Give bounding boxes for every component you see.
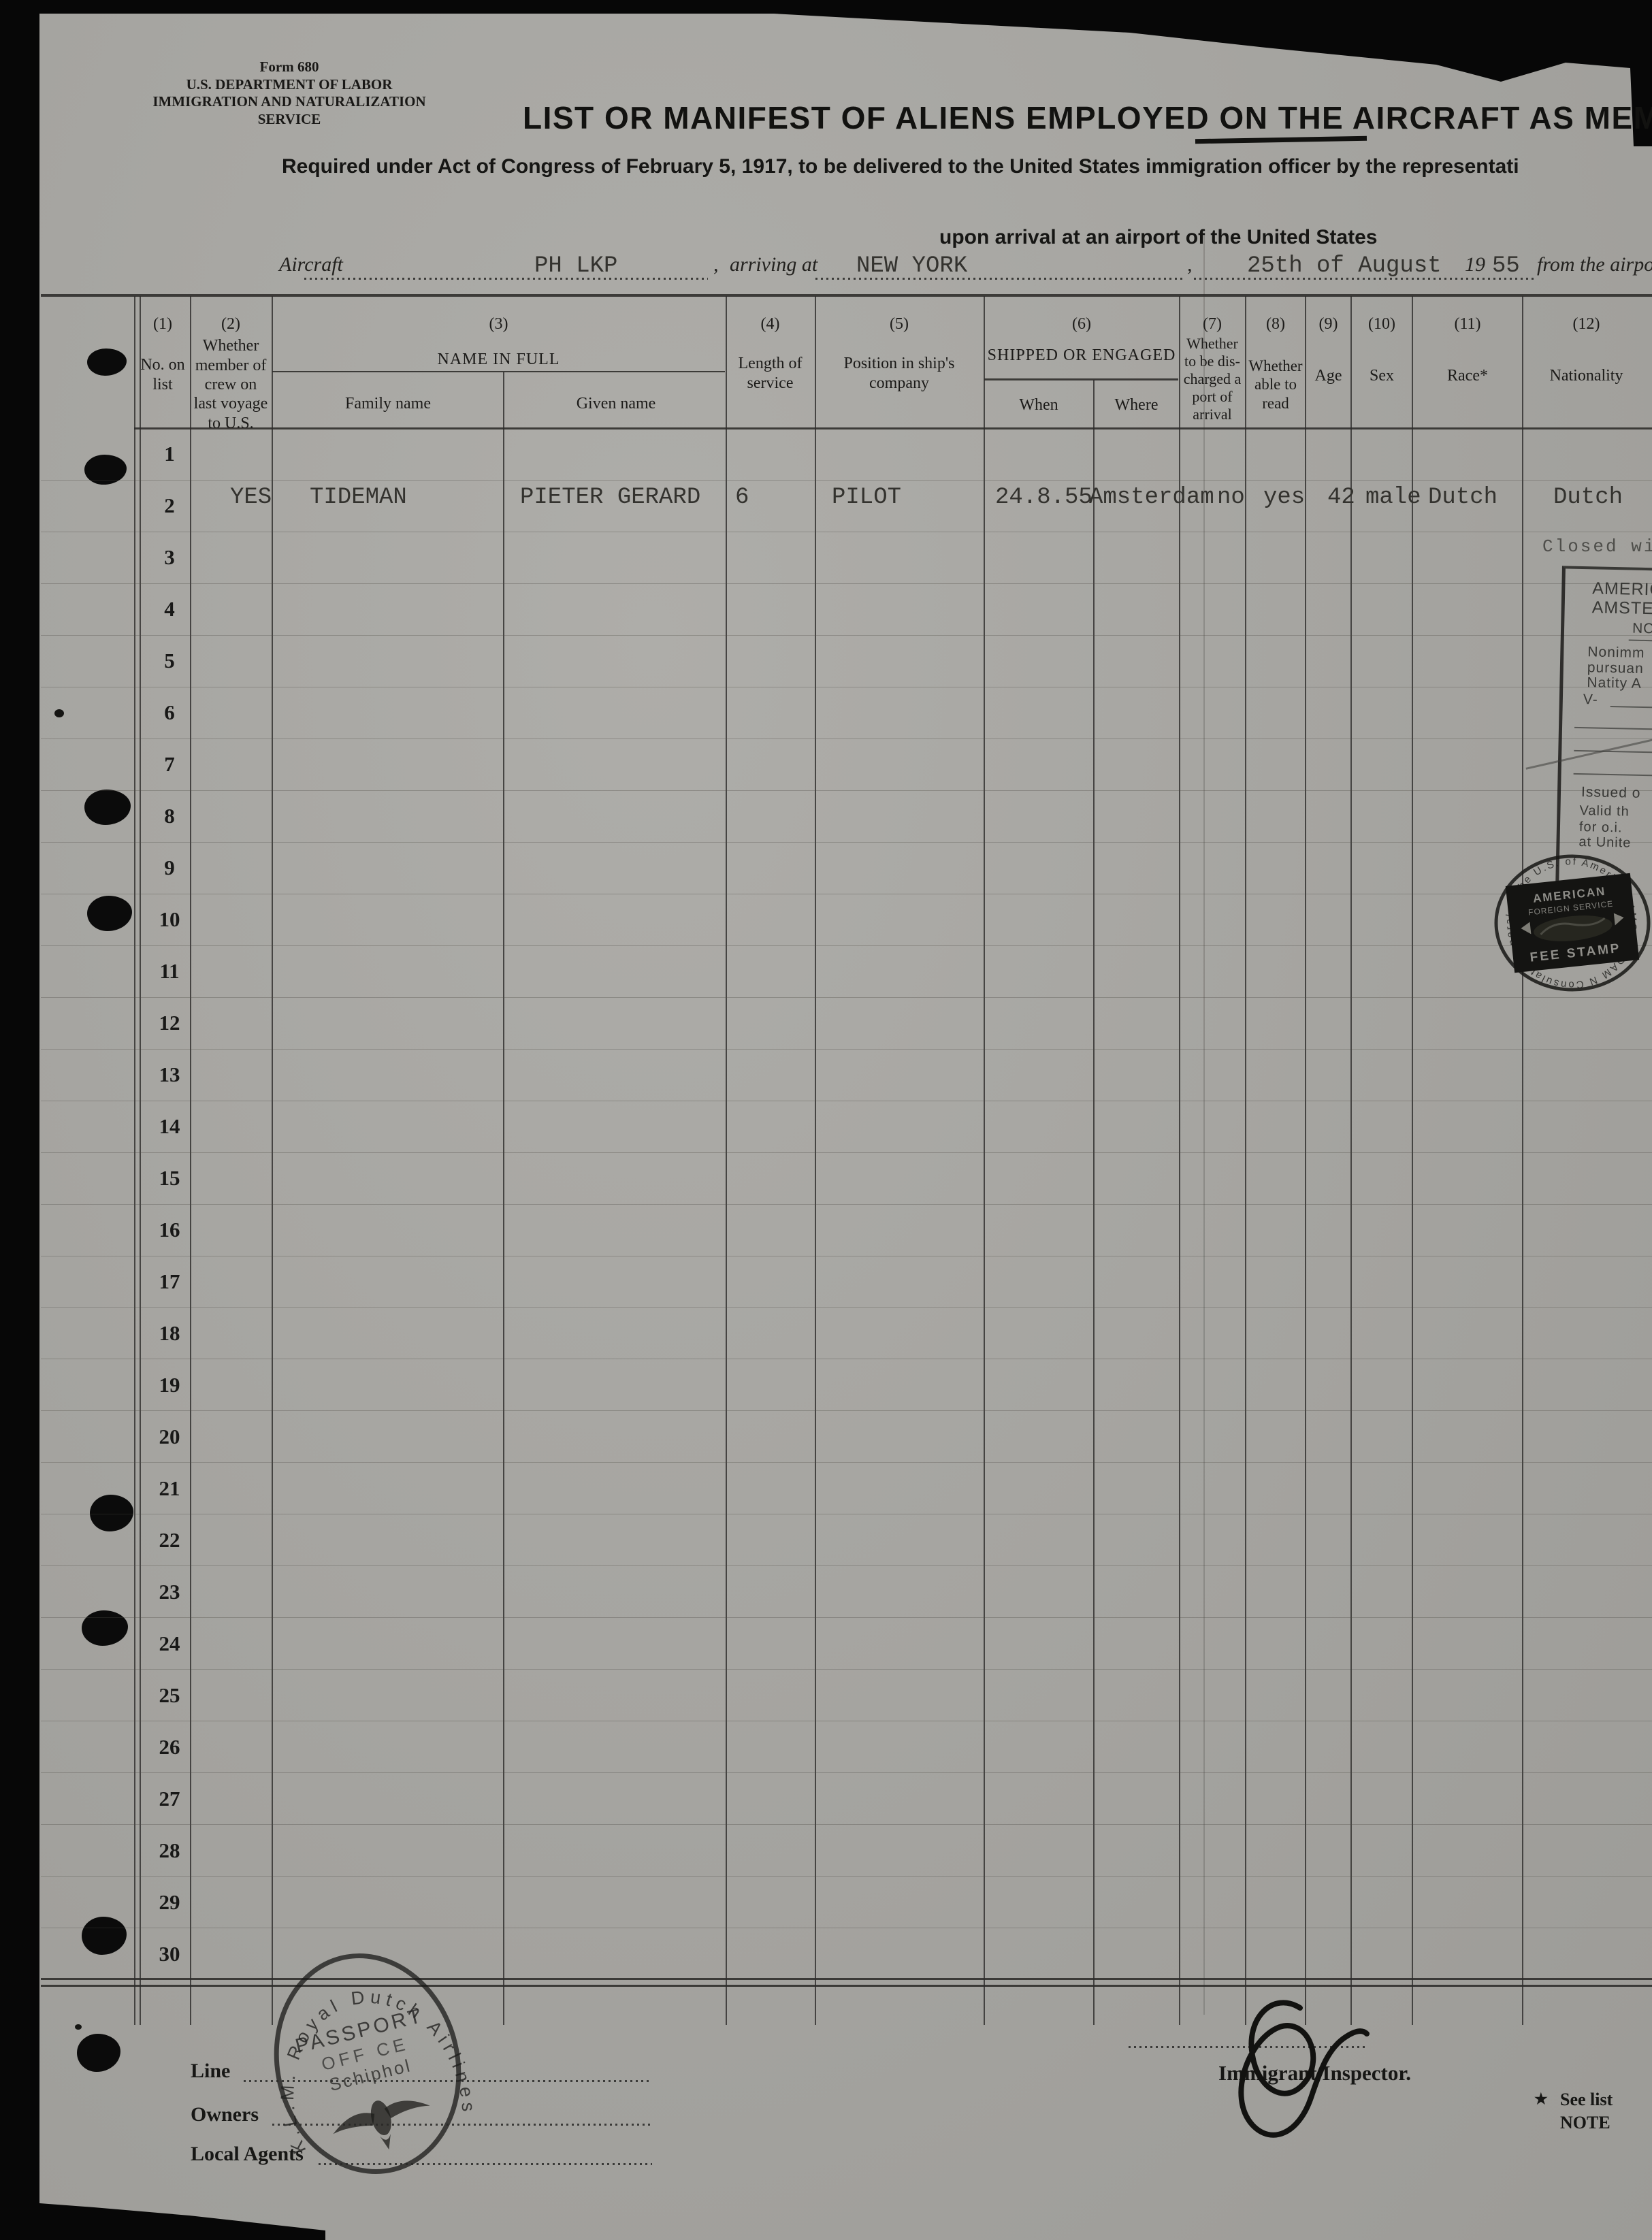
manifest-row: 11 — [41, 946, 1652, 998]
entry-able-to-read: yes — [1263, 485, 1305, 510]
race-note: ★ See list NOTE — [1560, 2088, 1613, 2135]
visa-line: Valid th — [1579, 803, 1630, 820]
manifest-row: 26 — [41, 1721, 1652, 1773]
row-number: 21 — [152, 1476, 187, 1501]
manifest-row: 27 — [41, 1773, 1652, 1825]
manifest-row: 19 — [41, 1359, 1652, 1411]
dotted-line — [304, 278, 708, 280]
manifest-row: 13 — [41, 1050, 1652, 1101]
row-number: 30 — [152, 1942, 187, 1966]
visa-underline — [1629, 640, 1652, 643]
col-header-9: (9) Age — [1306, 314, 1350, 386]
manifest-row: 3 — [41, 532, 1652, 584]
name-subheader-divider — [272, 371, 725, 372]
form-number: Form 680 — [129, 59, 449, 76]
manifest-row: 29 — [41, 1877, 1652, 1928]
col-label: NAME IN FULL — [272, 350, 725, 369]
visa-rule — [1610, 706, 1652, 709]
col-num: (4) — [728, 314, 812, 334]
manifest-row: 28 — [41, 1825, 1652, 1877]
local-agents-label: Local Agents — [191, 2143, 304, 2166]
entry-race: Dutch — [1428, 485, 1497, 510]
col-label: Whether member of crew on last voyage to… — [193, 336, 269, 433]
row-number: 20 — [152, 1425, 187, 1449]
manifest-row: 9 — [41, 843, 1652, 894]
row-number: 2 — [152, 493, 187, 518]
visa-rule — [1574, 750, 1652, 753]
row-number: 17 — [152, 1269, 187, 1294]
manifest-row: 5 — [41, 636, 1652, 687]
entry-family-name: TIDEMAN — [310, 485, 407, 510]
manifest-row: 21 — [41, 1463, 1652, 1514]
visa-line: at Unite — [1578, 834, 1631, 851]
entry-age: 42 — [1327, 485, 1355, 510]
subcol-where: Where — [1096, 396, 1177, 415]
col-num: (6) — [986, 314, 1177, 334]
visa-line: Natity A — [1587, 675, 1642, 692]
table-top-border — [41, 294, 1652, 297]
line-label: Line — [191, 2060, 230, 2083]
manifest-row: 15 — [41, 1153, 1652, 1205]
row-number: 22 — [152, 1528, 187, 1553]
entry-shipped-when: 24.8.55 — [995, 485, 1092, 510]
col-num: (8) — [1246, 314, 1305, 334]
visa-line: NO — [1632, 621, 1652, 638]
col-header-3: (3) NAME IN FULL — [272, 314, 725, 370]
manifest-row: 24 — [41, 1618, 1652, 1670]
manifest-row: 6 — [41, 687, 1652, 739]
col-header-10: (10) Sex — [1352, 314, 1412, 386]
star-icon: ★ — [1534, 2090, 1548, 2109]
row-number: 5 — [152, 649, 187, 673]
manifest-row: 23 — [41, 1566, 1652, 1618]
row-number: 19 — [152, 1373, 187, 1397]
scan-edge-left — [0, 0, 39, 2240]
col-num: (1) — [137, 314, 189, 334]
col-label: Nationality — [1523, 366, 1649, 385]
dotted-line — [815, 278, 1184, 280]
arrival-date-value: 25th of August — [1247, 253, 1442, 279]
manifest-row: 22 — [41, 1514, 1652, 1566]
visa-line: Nonimm — [1587, 644, 1645, 662]
row-number: 9 — [152, 856, 187, 880]
arriving-at-label: arriving at — [730, 253, 817, 276]
manifest-row: 4 — [41, 584, 1652, 636]
manifest-row: 17 — [41, 1256, 1652, 1308]
visa-line: Issued o — [1581, 784, 1641, 802]
col-header-2: (2) Whether member of crew on last voyag… — [193, 314, 269, 433]
aircraft-value: PH LKP — [534, 253, 617, 279]
col-header-12: (12) Nationality — [1523, 314, 1649, 386]
page-title: LIST OR MANIFEST OF ALIENS EMPLOYED ON T… — [523, 99, 1652, 136]
form-id-block: Form 680 U.S. DEPARTMENT OF LABOR IMMIGR… — [129, 59, 449, 128]
row-number: 7 — [152, 752, 187, 777]
scan-edge-top-right — [749, 0, 1652, 177]
col-header-11: (11) Race* — [1413, 314, 1522, 386]
row-number: 8 — [152, 804, 187, 828]
row-number: 29 — [152, 1890, 187, 1915]
owners-dotted — [272, 2124, 652, 2126]
entry-position: PILOT — [832, 485, 901, 510]
ink-speck — [75, 2024, 82, 2030]
scanned-manifest-document: Form 680 U.S. DEPARTMENT OF LABOR IMMIGR… — [0, 0, 1652, 2240]
manifest-row: 12 — [41, 998, 1652, 1050]
entry-length-of-service: 6 — [735, 485, 749, 510]
manifest-row: 10 — [41, 894, 1652, 946]
col-header-5: (5) Position in ship's company — [817, 314, 981, 393]
klm-stamp-arc-text: K.L.M. Royal Dutch Airlines — [253, 1965, 483, 2163]
col-header-7: (7) Whether to be dis-charged a port of … — [1180, 314, 1244, 423]
entry-discharged: no — [1217, 485, 1245, 510]
col-label: Age — [1306, 366, 1350, 385]
dotted-line — [1194, 278, 1534, 280]
row-number: 6 — [152, 700, 187, 725]
col-label: Sex — [1352, 366, 1412, 385]
col-label: No. on list — [137, 355, 189, 394]
col-num: (3) — [272, 314, 725, 334]
manifest-row: 16 — [41, 1205, 1652, 1256]
entry-nationality: Dutch — [1553, 485, 1623, 510]
closed-note: Closed wit — [1542, 536, 1652, 557]
col-label: Position in ship's company — [817, 354, 981, 393]
subtitle-line1: Required under Act of Congress of Februa… — [282, 155, 1652, 178]
col-header-1: (1) No. on list — [137, 314, 189, 394]
manifest-row: 14 — [41, 1101, 1652, 1153]
arriving-at-value: NEW YORK — [856, 253, 967, 279]
manifest-row: 25 — [41, 1670, 1652, 1721]
col-num: (11) — [1413, 314, 1522, 334]
visa-line: AMSTER — [1591, 598, 1652, 619]
manifest-rows: 1234567891011121314151617181920212223242… — [41, 429, 1652, 1979]
row-number: 18 — [152, 1321, 187, 1346]
col-label: Whether to be dis-charged a port of arri… — [1180, 335, 1244, 423]
manifest-row: 7 — [41, 739, 1652, 791]
col-num: (12) — [1523, 314, 1649, 334]
col-label: Whether able to read — [1246, 357, 1305, 412]
entry-crew-member: YES — [230, 485, 272, 510]
col-num: (7) — [1180, 314, 1244, 334]
shipped-subheader-divider — [984, 378, 1178, 380]
visa-line: V- — [1583, 692, 1598, 708]
subcol-when: When — [986, 396, 1091, 415]
row-number: 10 — [152, 907, 187, 932]
col-num: (2) — [193, 314, 269, 334]
svg-text:K.L.M. Royal Dutch Airlines: K.L.M. Royal Dutch Airlines — [253, 1965, 483, 2163]
row-number: 26 — [152, 1735, 187, 1759]
subtitle-line2: upon arrival at an airport of the United… — [939, 226, 1377, 249]
aircraft-label: Aircraft — [279, 253, 343, 276]
manifest-row: 20 — [41, 1411, 1652, 1463]
manifest-row: 18 — [41, 1308, 1652, 1359]
note-line2: NOTE — [1560, 2111, 1613, 2135]
row-number: 24 — [152, 1632, 187, 1656]
row-number: 27 — [152, 1787, 187, 1811]
col-label: SHIPPED OR ENGAGED — [986, 346, 1177, 365]
visa-line: for o.i. — [1579, 819, 1623, 836]
row-number: 12 — [152, 1011, 187, 1035]
visa-rule — [1574, 727, 1652, 730]
from-airport-label: from the airpo — [1537, 253, 1652, 276]
year-value: 55 — [1492, 253, 1520, 279]
inspector-signature — [1184, 1994, 1416, 2151]
visa-box-stamp: AMERIC AMSTER NO Nonimm pursuan Natity A… — [1555, 566, 1652, 892]
row-number: 1 — [152, 442, 187, 466]
row-number: 11 — [152, 959, 187, 984]
col-num: (10) — [1352, 314, 1412, 334]
subcol-given-name: Given name — [517, 395, 715, 413]
manifest-row: 8 — [41, 791, 1652, 843]
col-header-6: (6) SHIPPED OR ENGAGED — [986, 314, 1177, 366]
owners-label: Owners — [191, 2103, 259, 2126]
col-num: (9) — [1306, 314, 1350, 334]
row-number: 4 — [152, 597, 187, 621]
col-num: (5) — [817, 314, 981, 334]
row-number: 23 — [152, 1580, 187, 1604]
col-header-4: (4) Length of service — [728, 314, 812, 393]
line-dotted — [244, 2080, 652, 2082]
entry-sex: male — [1365, 485, 1421, 510]
entry-given-name: PIETER GERARD — [520, 485, 700, 510]
comma: , — [1187, 253, 1193, 276]
note-line1: See list — [1560, 2088, 1613, 2111]
row-number: 15 — [152, 1166, 187, 1190]
subcol-family-name: Family name — [286, 395, 490, 413]
visa-line: AMERIC — [1592, 579, 1652, 600]
entry-shipped-where: Amsterdam — [1089, 485, 1214, 510]
col-label: Race* — [1413, 366, 1522, 385]
row-number: 13 — [152, 1062, 187, 1087]
row-number: 25 — [152, 1683, 187, 1708]
year-prefix: 19 — [1465, 253, 1485, 276]
visa-rule — [1574, 773, 1652, 777]
row-number: 16 — [152, 1218, 187, 1242]
row-number: 28 — [152, 1838, 187, 1863]
scan-edge-bottom-left — [39, 2195, 325, 2240]
col-label: Length of service — [728, 354, 812, 393]
row-number: 14 — [152, 1114, 187, 1139]
consulate-fee-stamp: Consulate General of the U.S. of America… — [1492, 849, 1652, 999]
form-service: IMMIGRATION AND NATURALIZATION SERVICE — [129, 93, 449, 128]
manifest-row: 1 — [41, 429, 1652, 481]
form-department: U.S. DEPARTMENT OF LABOR — [129, 76, 449, 94]
local-agents-dotted — [319, 2163, 652, 2165]
col-header-8: (8) Whether able to read — [1246, 314, 1305, 412]
comma: , — [713, 253, 719, 276]
row-number: 3 — [152, 545, 187, 570]
